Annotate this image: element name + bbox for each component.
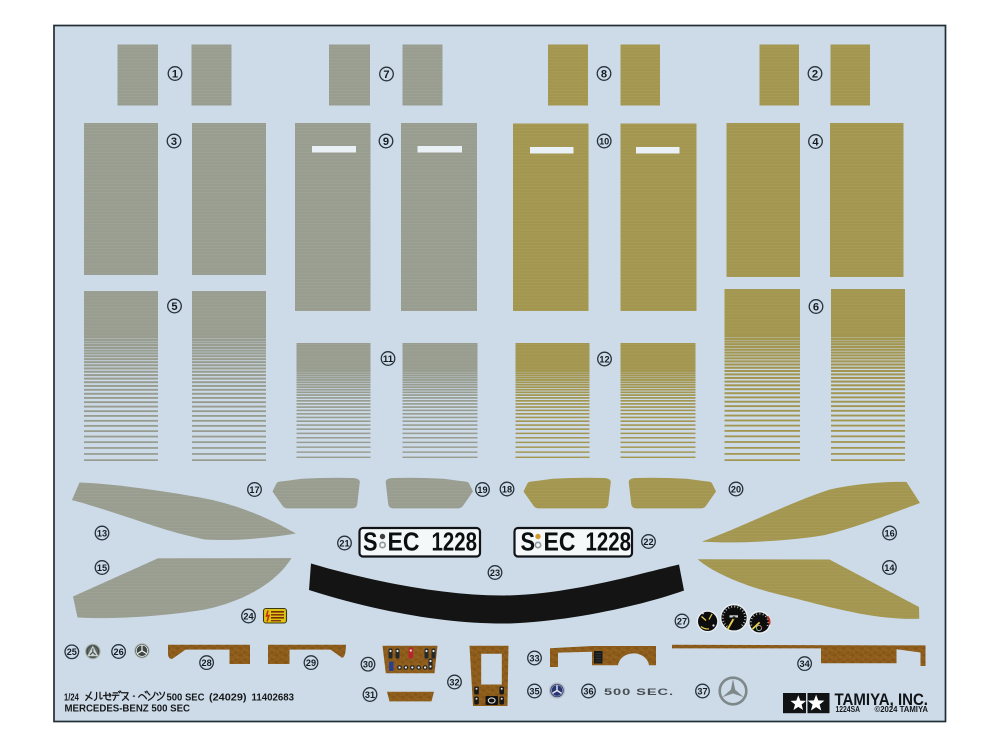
svg-text:S: S (363, 527, 378, 557)
svg-text:500 SEC: 500 SEC (167, 693, 205, 704)
svg-text:MERCEDES-BENZ 500 SEC: MERCEDES-BENZ 500 SEC (65, 703, 191, 714)
svg-text:8: 8 (601, 68, 607, 80)
svg-text:1/24: 1/24 (64, 693, 79, 704)
svg-text:26: 26 (114, 647, 124, 657)
svg-text:29: 29 (306, 658, 316, 668)
svg-text:11: 11 (383, 354, 393, 364)
svg-text:(24029): (24029) (209, 693, 247, 704)
svg-text:S: S (521, 527, 536, 557)
svg-text:20: 20 (731, 484, 741, 494)
svg-text:2: 2 (812, 68, 818, 80)
svg-text:36: 36 (583, 686, 593, 696)
svg-text:37: 37 (697, 686, 707, 696)
svg-text:11402683: 11402683 (252, 693, 295, 704)
svg-text:23: 23 (490, 568, 500, 578)
svg-text:500 SEC.: 500 SEC. (604, 687, 674, 698)
svg-text:35: 35 (529, 686, 539, 696)
svg-text:EC: EC (544, 527, 576, 557)
svg-text:30: 30 (363, 659, 373, 669)
svg-text:22: 22 (643, 537, 653, 547)
svg-text:10: 10 (599, 136, 609, 146)
svg-text:19: 19 (477, 485, 487, 495)
svg-text:15: 15 (97, 563, 107, 573)
svg-text:21: 21 (339, 538, 349, 548)
svg-text:18: 18 (502, 484, 512, 494)
svg-text:EC: EC (388, 527, 420, 557)
svg-text:©2024 TAMIYA: ©2024 TAMIYA (875, 705, 929, 714)
svg-text:27: 27 (677, 616, 687, 626)
svg-text:1228: 1228 (586, 527, 632, 557)
svg-text:28: 28 (202, 658, 212, 668)
svg-text:4: 4 (812, 136, 819, 148)
svg-text:7: 7 (383, 69, 389, 81)
svg-text:31: 31 (365, 690, 375, 700)
svg-text:1: 1 (172, 68, 178, 80)
svg-text:1224SA: 1224SA (836, 705, 861, 714)
svg-text:13: 13 (97, 528, 107, 538)
svg-text:3: 3 (171, 136, 177, 148)
svg-text:25: 25 (67, 647, 77, 657)
svg-text:24: 24 (243, 611, 254, 621)
svg-text:34: 34 (800, 659, 811, 669)
svg-text:1228: 1228 (432, 527, 478, 557)
svg-text:33: 33 (529, 653, 539, 663)
svg-text:14: 14 (884, 563, 895, 573)
svg-text:12: 12 (599, 354, 609, 364)
svg-text:17: 17 (249, 485, 259, 495)
svg-text:6: 6 (813, 301, 819, 313)
svg-text:9: 9 (383, 136, 389, 148)
svg-text:32: 32 (449, 677, 459, 687)
svg-text:5: 5 (171, 301, 177, 313)
svg-text:16: 16 (885, 528, 895, 538)
